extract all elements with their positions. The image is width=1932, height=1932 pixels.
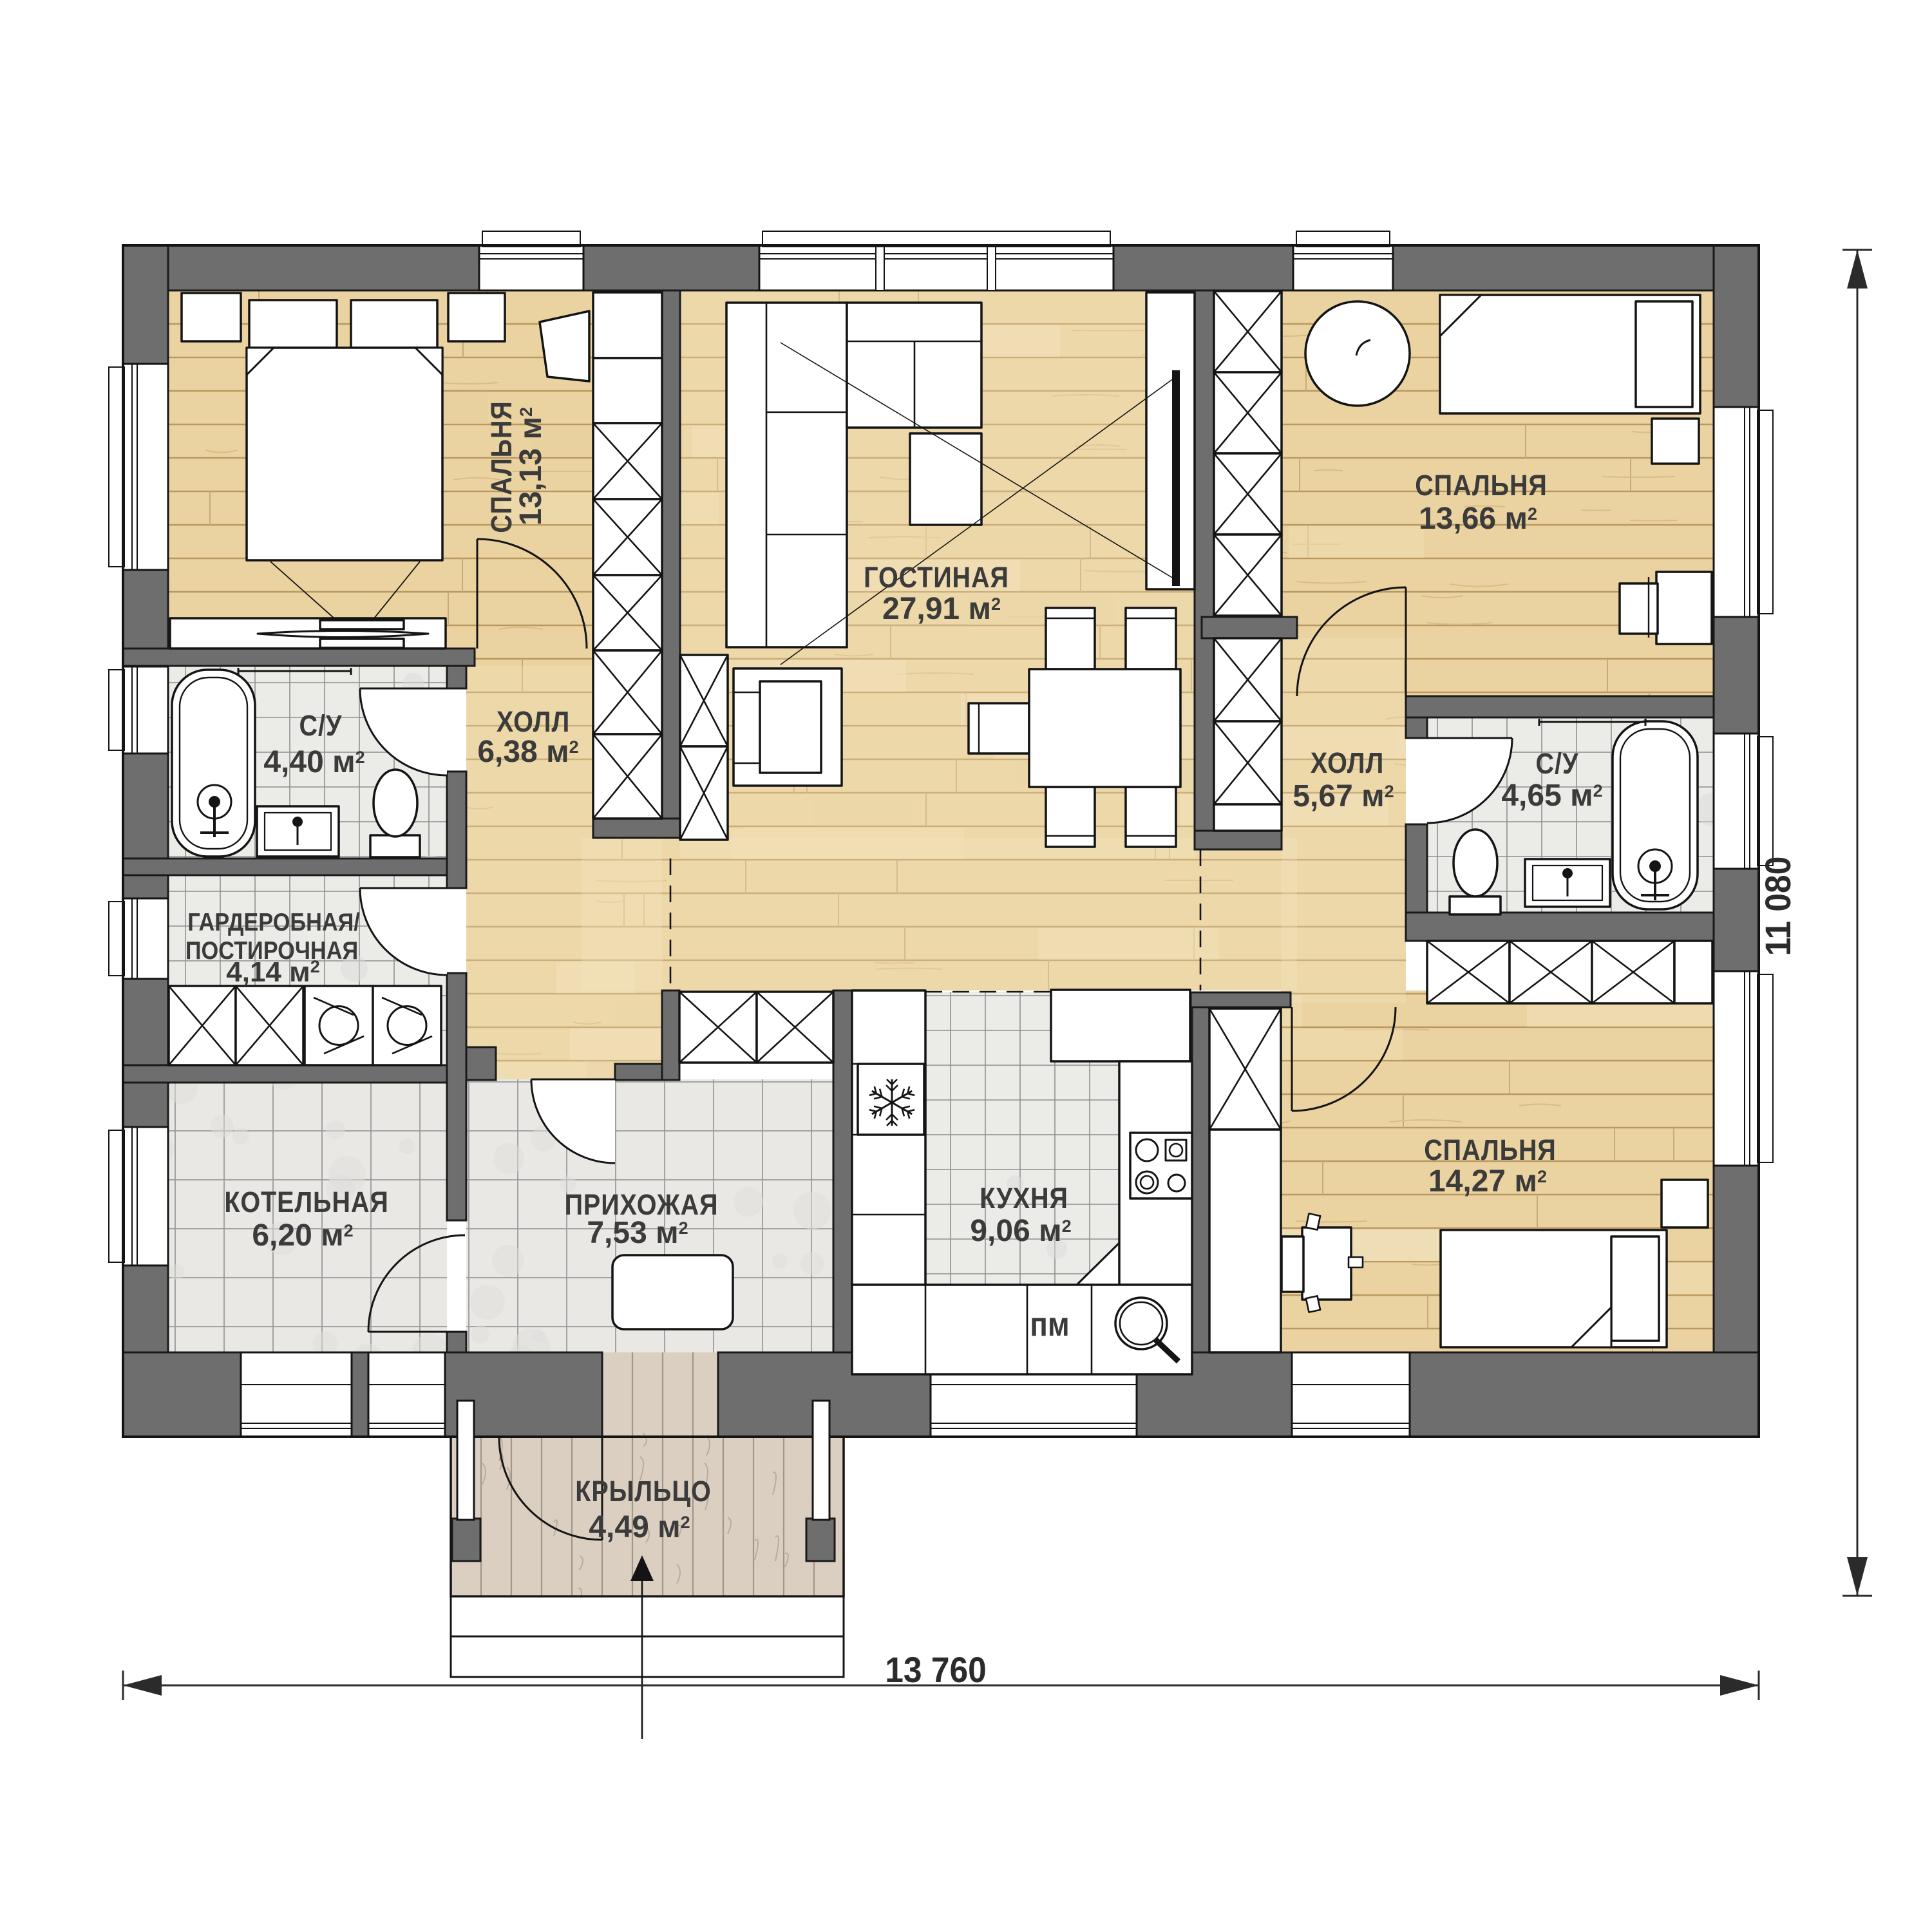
svg-text:6,20 м2: 6,20 м2 — [252, 1218, 353, 1253]
svg-text:14,27 м2: 14,27 м2 — [1428, 1164, 1547, 1198]
svg-text:4,14 м2: 4,14 м2 — [226, 956, 319, 988]
svg-text:4,40 м2: 4,40 м2 — [263, 745, 365, 779]
svg-text:КОТЕЛЬНАЯ: КОТЕЛЬНАЯ — [224, 1186, 388, 1218]
svg-text:6,38 м2: 6,38 м2 — [477, 735, 578, 769]
svg-text:13,66 м2: 13,66 м2 — [1419, 502, 1537, 536]
svg-text:ГОСТИНАЯ: ГОСТИНАЯ — [864, 562, 1009, 594]
svg-text:4,49 м2: 4,49 м2 — [589, 1510, 690, 1544]
svg-text:КУХНЯ: КУХНЯ — [980, 1182, 1068, 1215]
svg-text:ХОЛЛ: ХОЛЛ — [1311, 747, 1384, 779]
svg-text:4,65 м2: 4,65 м2 — [1501, 779, 1602, 813]
svg-text:С/У: С/У — [299, 710, 343, 742]
svg-text:СПАЛЬНЯ: СПАЛЬНЯ — [1424, 1134, 1557, 1166]
svg-text:С/У: С/У — [1536, 748, 1579, 780]
svg-text:7,53 м2: 7,53 м2 — [587, 1216, 688, 1250]
svg-text:11 080: 11 080 — [1758, 857, 1798, 956]
svg-text:27,91 м2: 27,91 м2 — [882, 592, 1001, 626]
svg-text:ХОЛЛ: ХОЛЛ — [497, 706, 570, 738]
svg-text:СПАЛЬНЯ: СПАЛЬНЯ — [486, 401, 518, 533]
svg-text:ГАРДЕРОБНАЯ/: ГАРДЕРОБНАЯ/ — [187, 908, 360, 936]
svg-text:13 760: 13 760 — [885, 1650, 987, 1690]
svg-text:СПАЛЬНЯ: СПАЛЬНЯ — [1415, 469, 1548, 502]
svg-text:пм: пм — [1030, 1306, 1069, 1343]
svg-text:КРЫЛЬЦО: КРЫЛЬЦО — [575, 1475, 711, 1508]
svg-text:13,13 м2: 13,13 м2 — [514, 407, 548, 526]
svg-text:5,67 м2: 5,67 м2 — [1293, 779, 1394, 813]
svg-text:9,06 м2: 9,06 м2 — [970, 1214, 1071, 1248]
